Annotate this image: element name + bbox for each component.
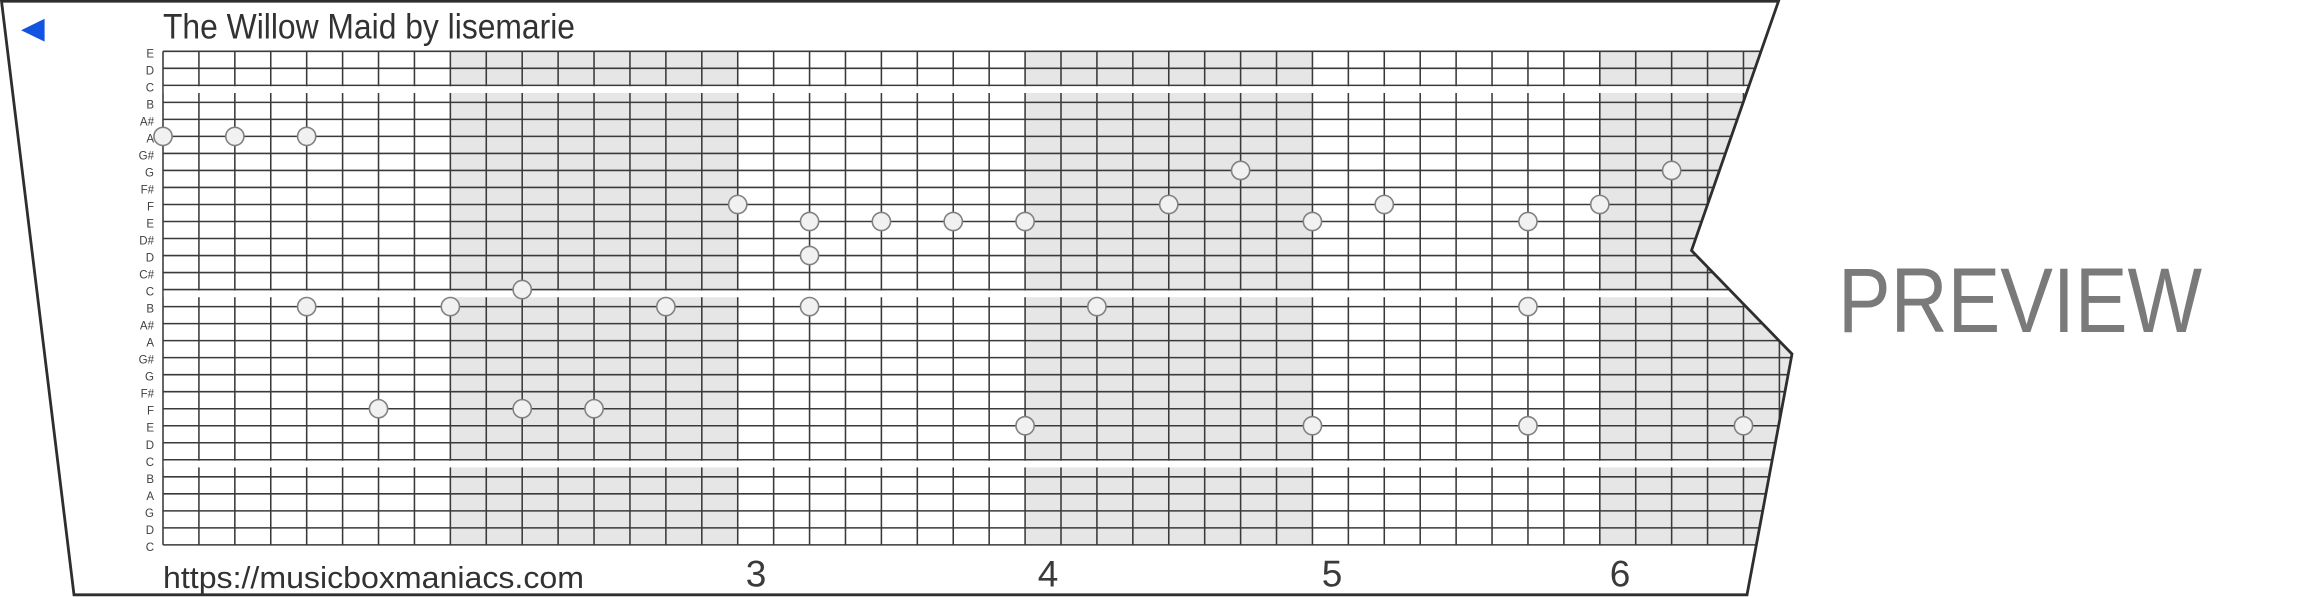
svg-text:5: 5 xyxy=(1322,554,1343,595)
svg-text:D#: D# xyxy=(139,236,154,248)
svg-text:F: F xyxy=(147,406,154,418)
svg-text:3: 3 xyxy=(746,554,767,595)
svg-text:A: A xyxy=(146,338,154,350)
svg-text:C: C xyxy=(146,457,154,469)
svg-text:F#: F# xyxy=(141,389,155,401)
svg-text:G#: G# xyxy=(139,355,155,367)
svg-text:The Willow Maid by lisemarie: The Willow Maid by lisemarie xyxy=(163,7,575,47)
svg-text:D: D xyxy=(146,65,154,77)
svg-text:G: G xyxy=(145,167,154,179)
svg-text:C#: C# xyxy=(139,270,154,282)
svg-text:https://musicboxmaniacs.com: https://musicboxmaniacs.com xyxy=(163,560,584,595)
svg-text:A: A xyxy=(146,491,154,503)
svg-text:D: D xyxy=(146,525,154,537)
svg-text:F#: F# xyxy=(141,184,155,196)
svg-text:C: C xyxy=(146,542,154,554)
svg-text:B: B xyxy=(146,474,154,486)
svg-text:A: A xyxy=(146,133,154,145)
svg-text:G: G xyxy=(145,372,154,384)
svg-text:B: B xyxy=(146,304,154,316)
svg-text:C: C xyxy=(146,82,154,94)
svg-text:D: D xyxy=(146,253,154,265)
svg-text:E: E xyxy=(146,219,154,231)
svg-text:4: 4 xyxy=(1038,554,1059,595)
svg-text:D: D xyxy=(146,440,154,452)
svg-text:F: F xyxy=(147,201,154,213)
svg-text:C: C xyxy=(146,287,154,299)
svg-text:B: B xyxy=(146,99,154,111)
svg-text:E: E xyxy=(146,48,154,60)
svg-text:G#: G# xyxy=(139,150,155,162)
svg-text:E: E xyxy=(146,423,154,435)
svg-text:PREVIEW: PREVIEW xyxy=(1838,250,2202,352)
svg-text:G: G xyxy=(145,508,154,520)
svg-text:A#: A# xyxy=(140,321,155,333)
svg-text:A#: A# xyxy=(140,116,155,128)
svg-text:6: 6 xyxy=(1610,554,1631,595)
